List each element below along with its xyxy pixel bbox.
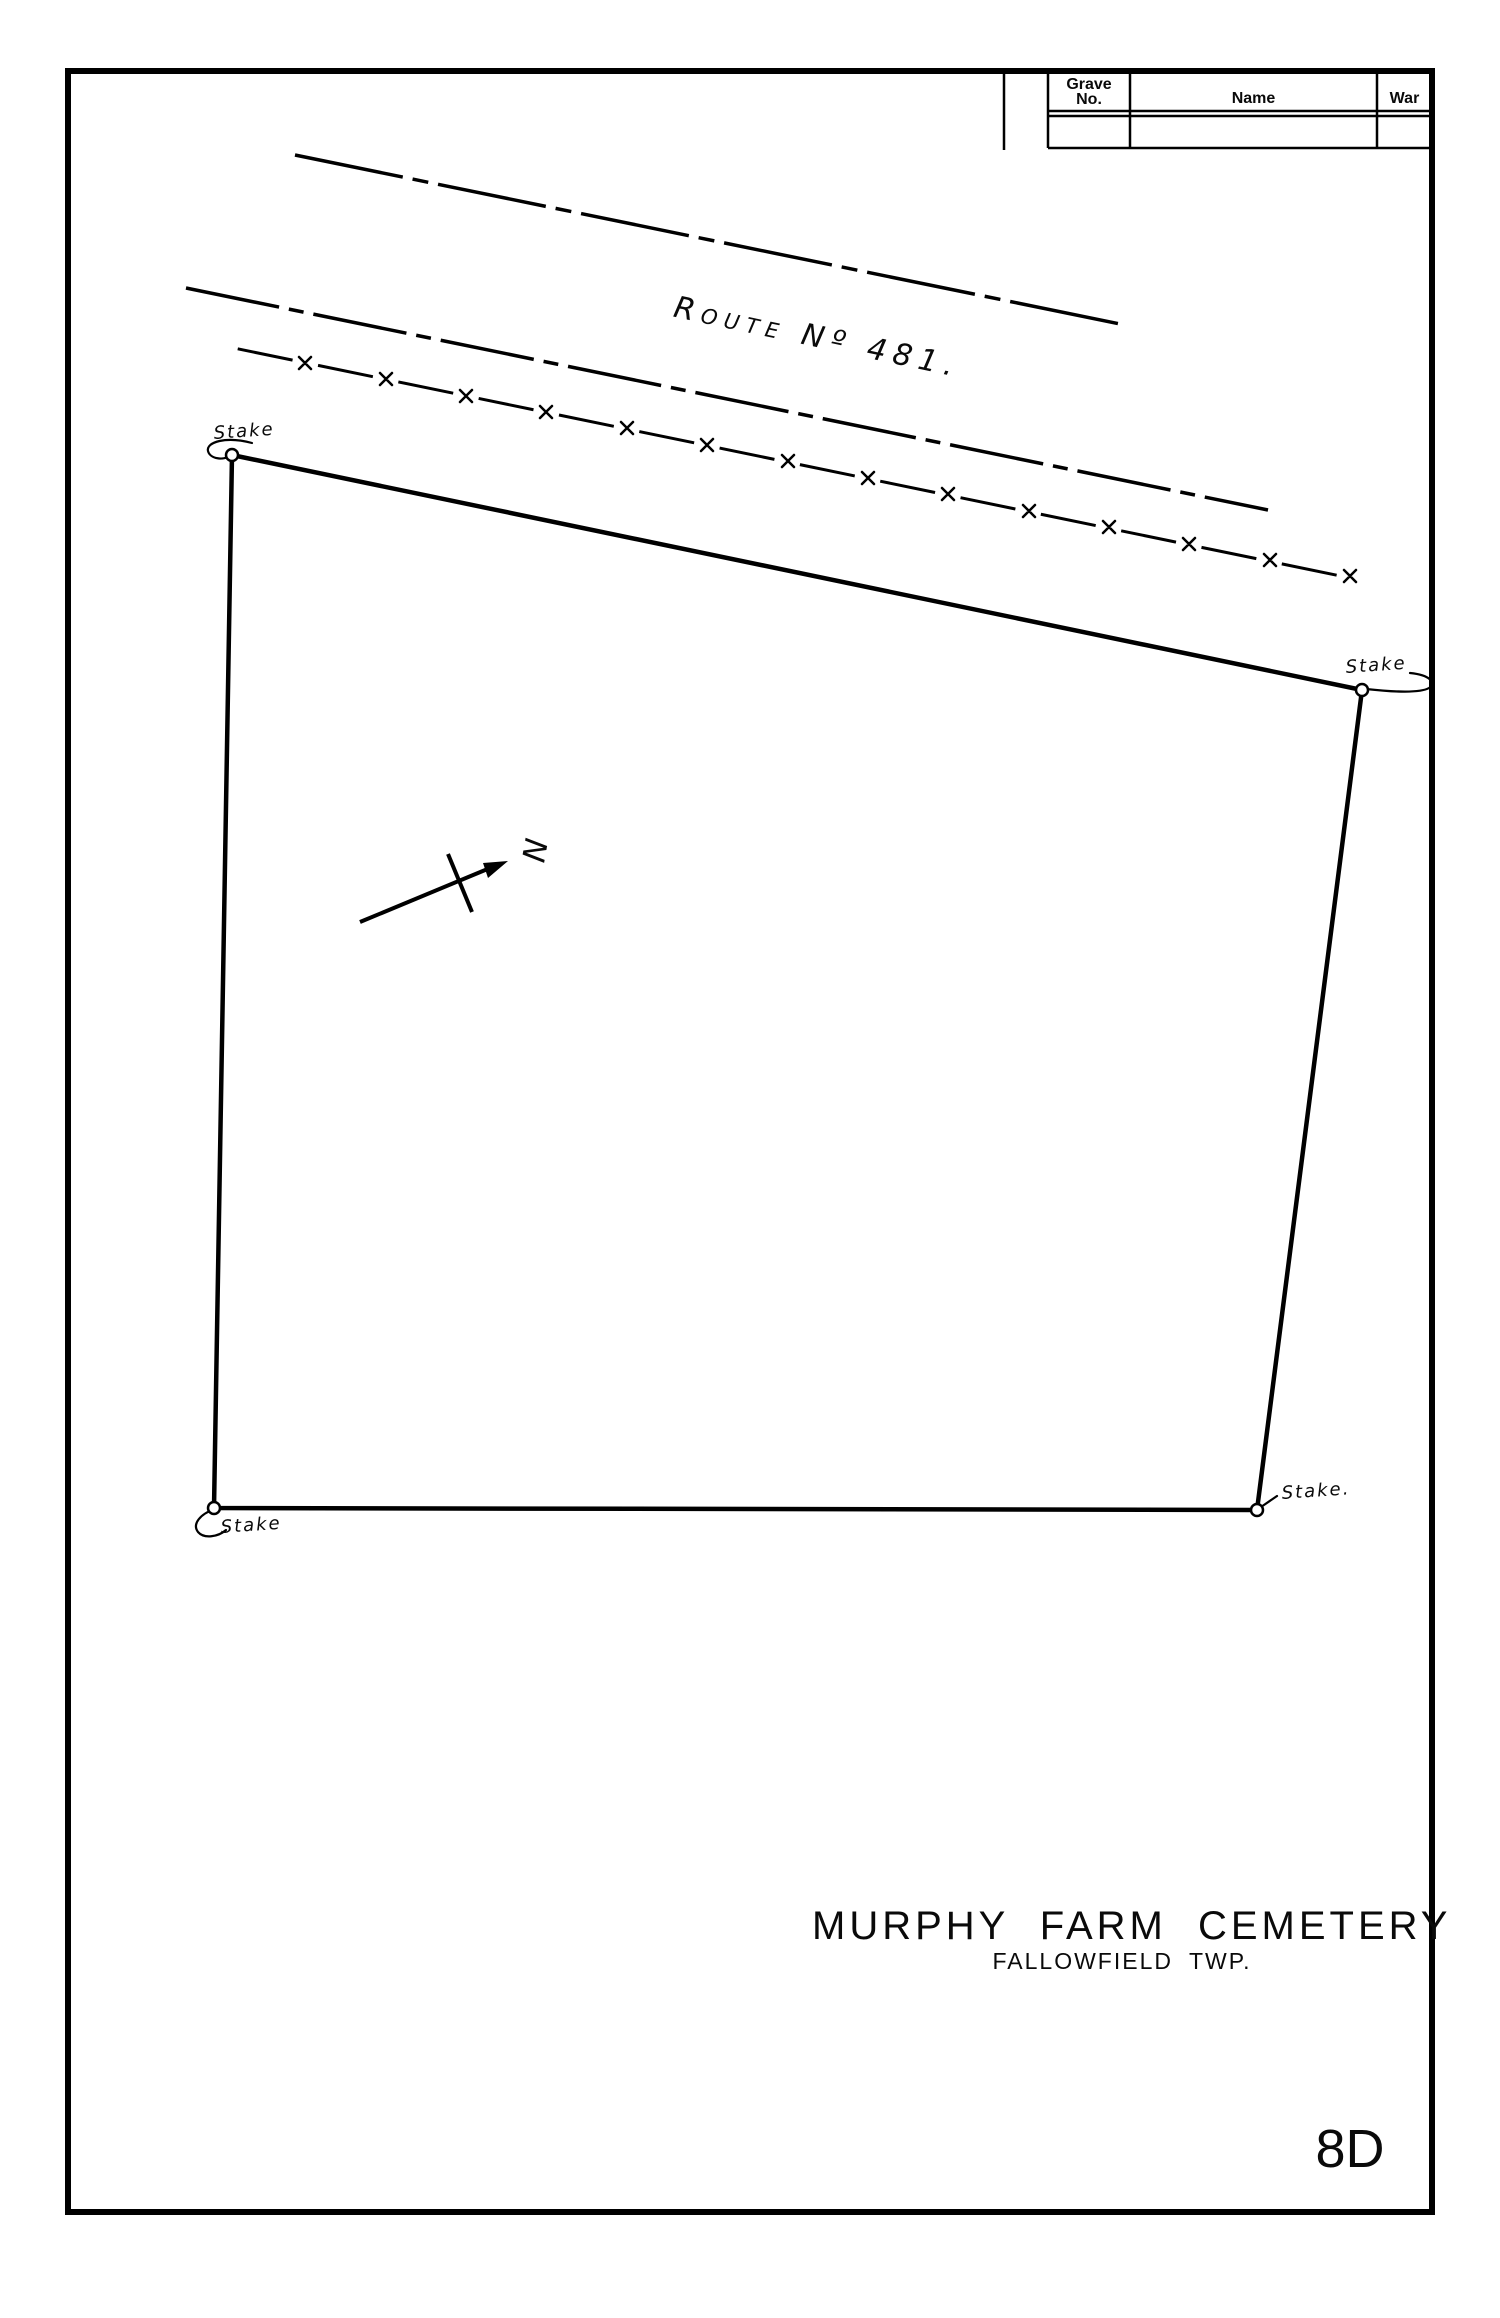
stake-leader-bottom-right bbox=[1261, 1496, 1277, 1507]
stake-marker-bottom-left bbox=[208, 1502, 220, 1514]
name-header: Name bbox=[1130, 91, 1377, 107]
township-subtitle: FALLOWFIELD TWP. bbox=[812, 1948, 1432, 1975]
grave-no-header-line2: No. bbox=[1048, 92, 1130, 108]
survey-sheet: Grave No. Name War Route Nº 481. Stake S… bbox=[0, 0, 1500, 2318]
stake-leaders bbox=[196, 440, 1432, 1536]
grave-no-cell bbox=[1048, 120, 1130, 146]
cemetery-title: MURPHY FARM CEMETERY bbox=[812, 1904, 1432, 1949]
war-cell bbox=[1377, 120, 1432, 146]
north-arrow-head bbox=[483, 861, 508, 878]
page-border bbox=[68, 71, 1432, 2212]
stake-label-top-left: Stake bbox=[213, 419, 275, 444]
stake-marker-bottom-right bbox=[1251, 1504, 1263, 1516]
name-cell bbox=[1130, 120, 1377, 146]
boundary-polygon bbox=[214, 455, 1362, 1510]
stake-markers bbox=[208, 449, 1368, 1516]
stake-marker-top-right bbox=[1356, 684, 1368, 696]
north-arrow bbox=[360, 854, 508, 922]
stake-marker-top-left bbox=[226, 449, 238, 461]
stake-label-bottom-left: Stake bbox=[220, 1513, 282, 1538]
stake-label-top-right: Stake bbox=[1345, 653, 1407, 678]
war-header: War bbox=[1377, 91, 1432, 107]
north-arrow-shaft bbox=[360, 868, 490, 922]
page-number: 8D bbox=[1290, 2118, 1410, 2180]
